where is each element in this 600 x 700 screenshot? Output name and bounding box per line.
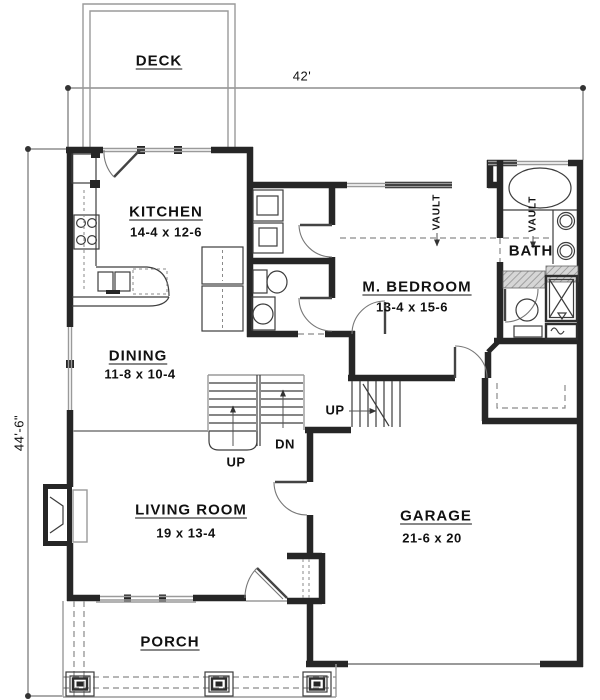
vanity-sinks-icon <box>558 213 575 260</box>
room-dims-kitchen: 14-4 x 12-6 <box>130 225 202 240</box>
tub-icon <box>503 168 577 210</box>
room-dims-dining: 11-8 x 10-4 <box>104 367 175 382</box>
main-stairs <box>73 375 304 450</box>
deck-outline <box>83 4 235 150</box>
porch-column <box>303 672 331 696</box>
room-label-dining: DINING <box>109 348 168 365</box>
floor-plan-drawing <box>0 0 600 700</box>
porch-column <box>66 672 94 696</box>
room-dims-garage: 21-6 x 20 <box>402 531 461 546</box>
dimension-label-height: 44'-6" <box>12 415 27 451</box>
room-label-porch: PORCH <box>140 634 199 651</box>
kitchen-fixtures <box>72 150 243 331</box>
room-label-bath: BATH <box>509 243 554 260</box>
toilet-icon-master <box>514 299 542 337</box>
stair-label-up-main: UP <box>226 455 245 470</box>
stair-label-dn: DN <box>275 437 295 452</box>
room-label-kitchen: KITCHEN <box>129 204 203 221</box>
range-icon <box>74 215 99 249</box>
room-dims-master-bedroom: 13-4 x 15-6 <box>376 300 448 315</box>
room-dims-living-room: 19 x 13-4 <box>156 526 215 541</box>
porch-column <box>205 672 233 696</box>
refrigerator-icon <box>202 247 243 284</box>
shower-icon <box>546 276 577 321</box>
toilet-icon <box>253 270 287 293</box>
half-bath-fixtures <box>252 270 287 330</box>
floor-plan-page: DECK KITCHEN 14-4 x 12-6 DINING 11-8 x 1… <box>0 0 600 700</box>
room-label-garage: GARAGE <box>400 508 472 525</box>
linen-closet-icon <box>546 324 577 339</box>
stair-label-up-garage: UP <box>325 403 344 418</box>
vault-label-bath: VAULT <box>528 196 539 233</box>
room-label-deck: DECK <box>136 53 183 70</box>
fireplace-icon <box>46 487 88 544</box>
room-label-living-room: LIVING ROOM <box>135 502 247 519</box>
garage-stairs <box>349 381 400 427</box>
vault-label-bedroom: VAULT <box>432 194 443 231</box>
washer-dryer-icon <box>253 190 283 253</box>
sink-icon <box>252 297 275 330</box>
dimension-label-width: 42' <box>293 69 311 84</box>
room-label-master-bedroom: M. BEDROOM <box>362 279 471 296</box>
kitchen-sink-icon <box>98 272 130 294</box>
